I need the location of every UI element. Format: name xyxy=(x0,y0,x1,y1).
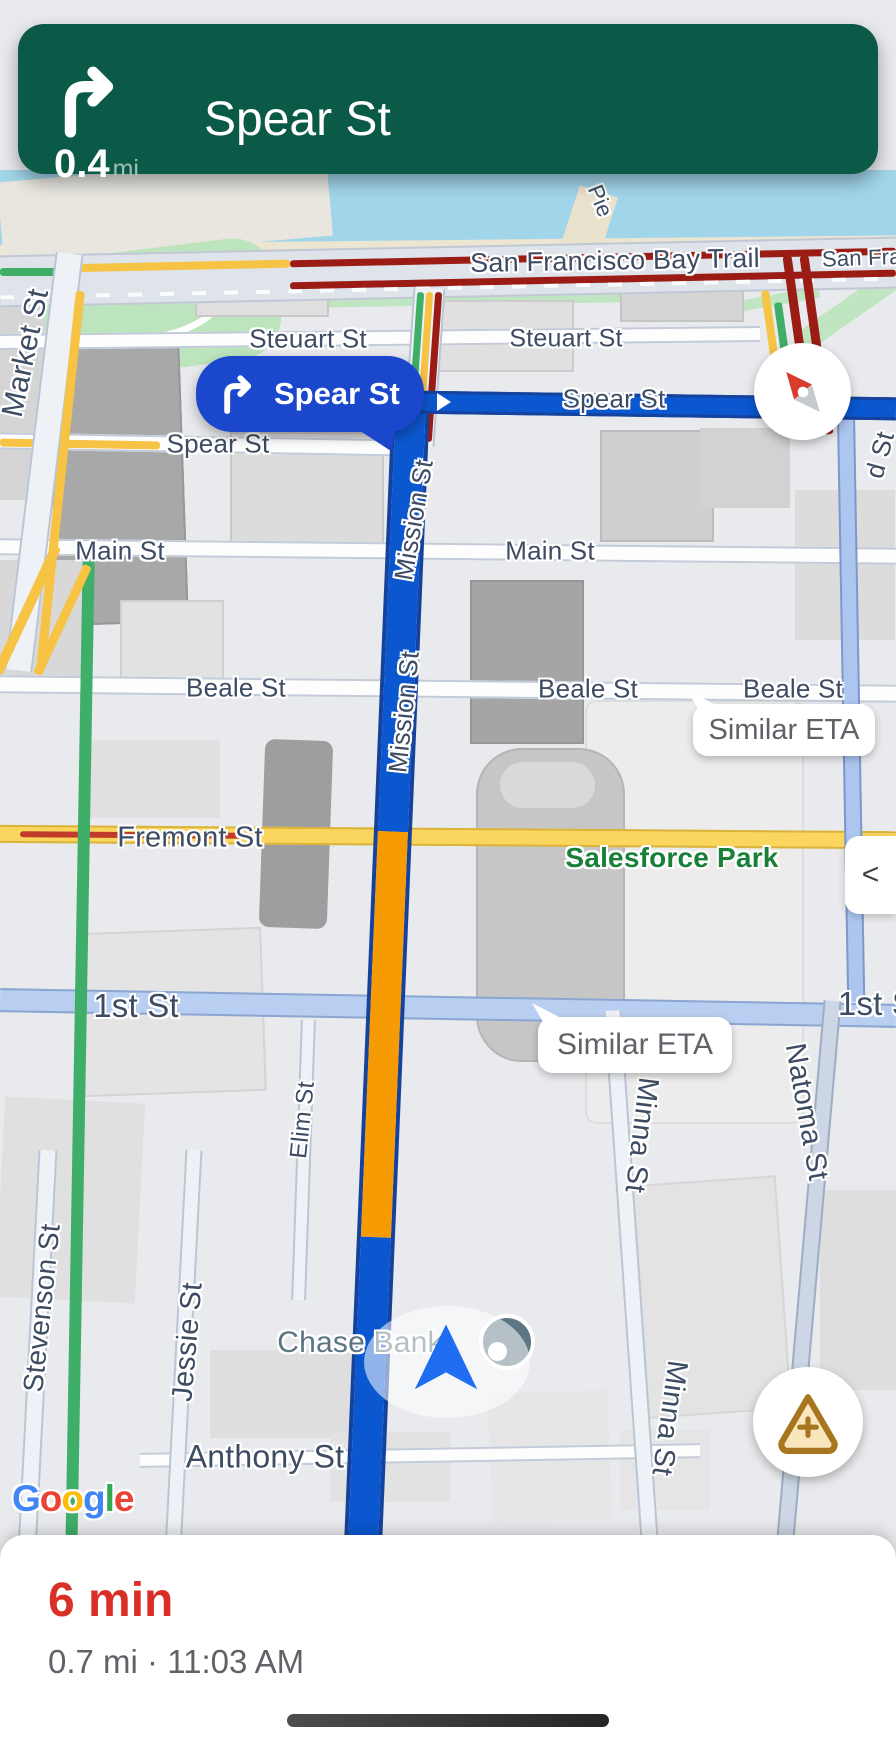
route-segment-traffic-orange xyxy=(361,831,408,1238)
street-label-fremont: Fremont St xyxy=(117,822,262,855)
street-label-beale-left: Beale St xyxy=(186,673,286,704)
location-chevron-icon xyxy=(407,1322,485,1394)
maneuver-callout: Spear St xyxy=(196,356,424,432)
street-label-jessie: Jessie St xyxy=(166,1281,209,1403)
building xyxy=(632,1175,792,1418)
alternate-route-eta-bubble[interactable]: Similar ETA xyxy=(693,704,875,756)
street-label-anthony: Anthony St xyxy=(186,1439,345,1476)
road-elim-st xyxy=(291,1020,316,1300)
trip-details: 0.7 mi · 11:03 AM xyxy=(48,1643,304,1681)
building xyxy=(600,430,714,542)
warning-triangle-plus-icon xyxy=(775,1389,841,1455)
street-label-sf-bay-trail: San Francisco Bay Trail xyxy=(470,243,760,279)
turn-right-arrow-icon xyxy=(54,64,128,138)
street-label-beale-mid: Beale St xyxy=(538,674,638,705)
compass-button[interactable] xyxy=(754,343,851,440)
google-letter: o xyxy=(61,1478,83,1519)
eta-bubble-label: Similar ETA xyxy=(709,714,860,747)
google-letter: e xyxy=(114,1478,134,1519)
collapse-panel-button[interactable]: < xyxy=(845,836,896,914)
poi-label-salesforce-park: Salesforce Park xyxy=(565,842,778,874)
street-label-spear-right: Spear St xyxy=(563,384,666,415)
compass-needle-icon xyxy=(772,361,834,423)
google-letter: l xyxy=(105,1478,114,1519)
google-logo: Google xyxy=(12,1478,133,1520)
building xyxy=(470,580,584,744)
street-label-steuart-right: Steuart St xyxy=(509,325,622,354)
drag-handle[interactable] xyxy=(287,1714,609,1727)
distance-value: 0.4 xyxy=(54,142,110,186)
street-label-1st-left: 1st St xyxy=(93,987,179,1025)
navigation-banner[interactable]: 0.4mi Spear St xyxy=(18,24,878,174)
google-letter: o xyxy=(40,1478,62,1519)
building xyxy=(210,1350,360,1438)
distance-unit: mi xyxy=(113,155,139,183)
building xyxy=(700,428,790,508)
next-street-name: Spear St xyxy=(204,92,391,147)
building xyxy=(500,762,595,808)
phone-screen: { "navigation_banner": { "maneuver_icon"… xyxy=(0,0,896,1747)
map-canvas[interactable]: Pie San Francisco Bay Trail San Fran Ste… xyxy=(0,0,896,1747)
route-direction-arrow xyxy=(437,393,451,411)
street-label-beale-right: Beale St xyxy=(743,674,843,705)
street-label-san-fran: San Fran xyxy=(822,243,896,272)
turn-right-arrow-icon xyxy=(218,373,260,415)
street-label-main-right: Main St xyxy=(505,536,595,567)
building xyxy=(90,740,220,818)
building xyxy=(820,1190,896,1390)
trip-eta: 6 min xyxy=(48,1573,173,1628)
google-letter: G xyxy=(12,1478,40,1519)
maneuver-distance: 0.4mi xyxy=(54,142,139,187)
eta-bubble-label: Similar ETA xyxy=(557,1028,713,1062)
street-label-main-left: Main St xyxy=(75,536,165,567)
street-label-1st-right: 1st S xyxy=(838,985,896,1023)
report-incident-button[interactable] xyxy=(753,1367,863,1477)
alternate-route-eta-bubble[interactable]: Similar ETA xyxy=(538,1017,732,1073)
street-label-steuart-left: Steuart St xyxy=(249,324,367,355)
street-label-elim: Elim St xyxy=(285,1080,321,1160)
maneuver-callout-label: Spear St xyxy=(274,376,400,412)
street-label-d-st-fragment: d St xyxy=(859,428,896,481)
google-letter: g xyxy=(83,1478,105,1519)
street-label-spear-left: Spear St xyxy=(167,429,270,460)
collapse-label: < xyxy=(862,858,880,892)
